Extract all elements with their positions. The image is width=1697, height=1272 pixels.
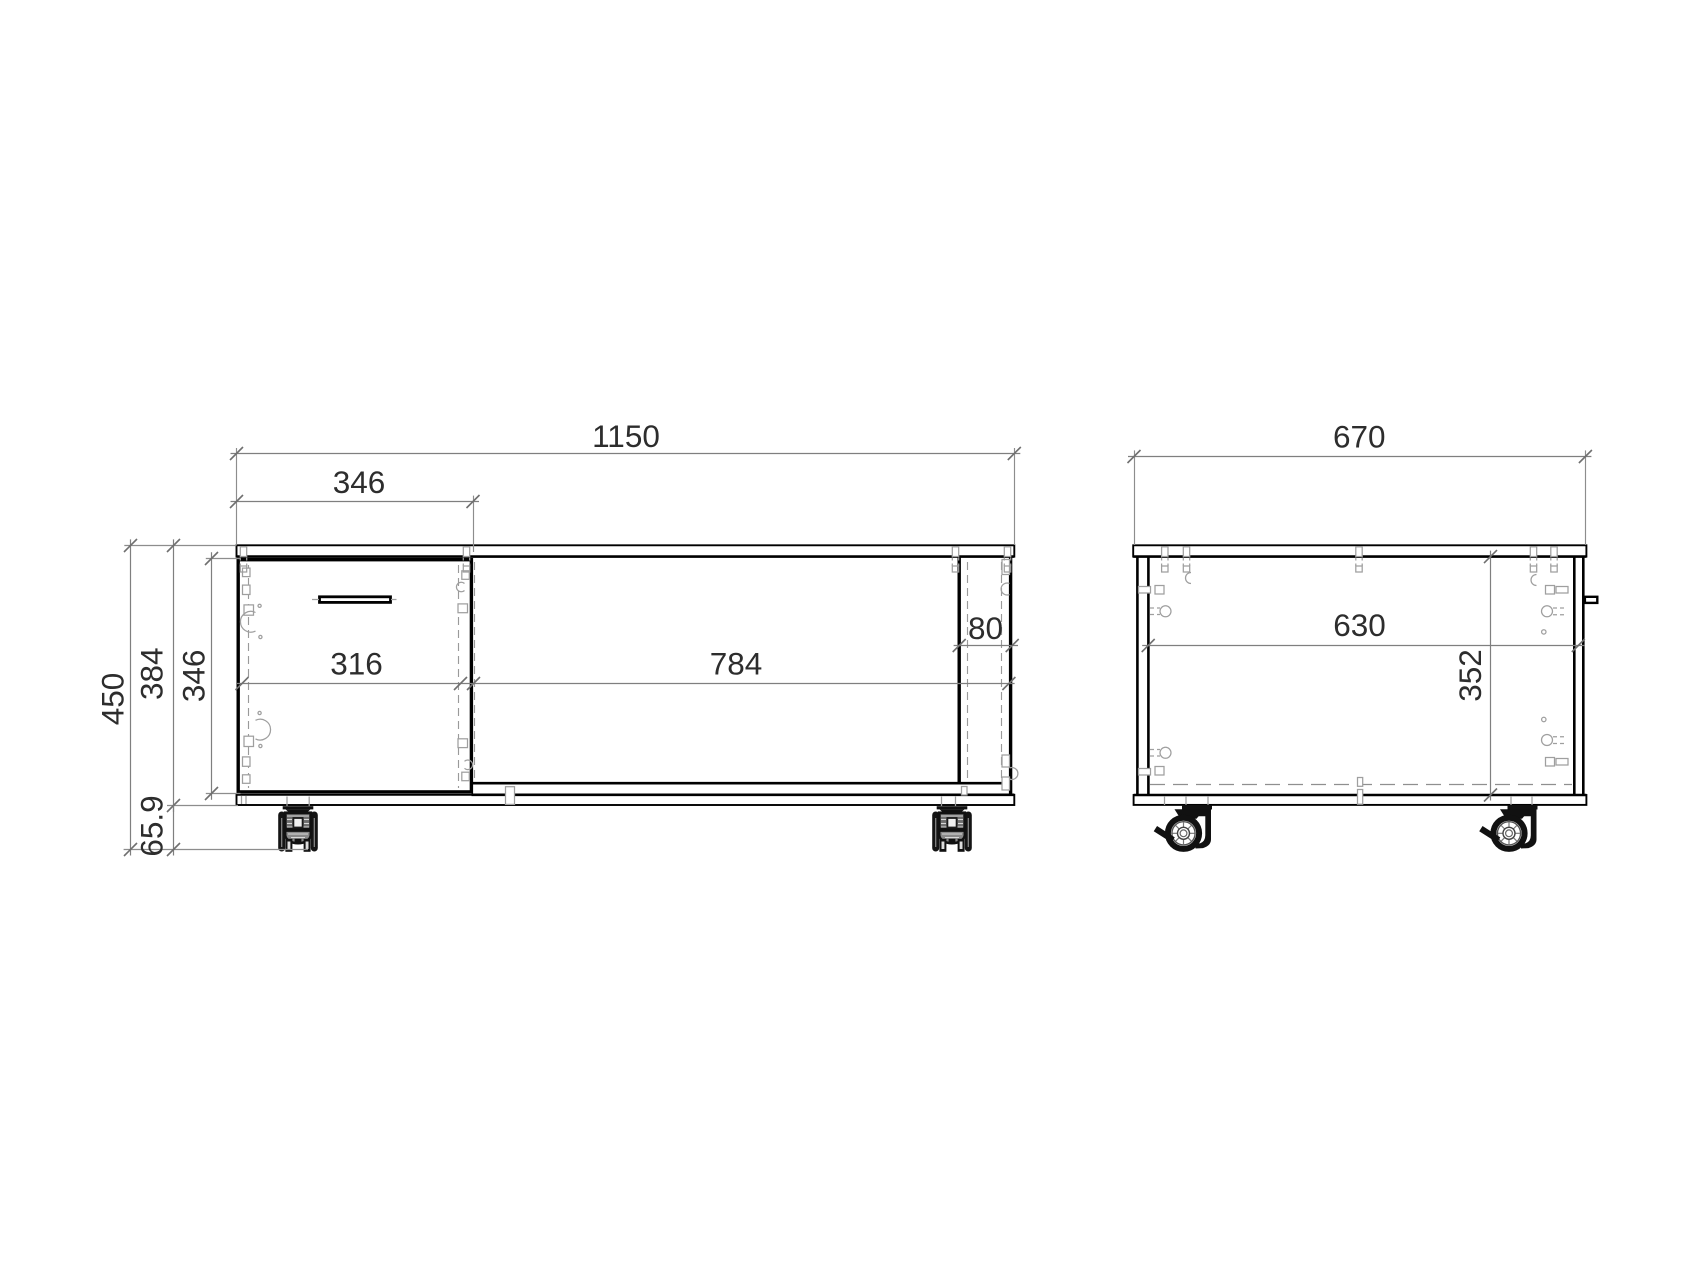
svg-text:630: 630 (1333, 607, 1386, 643)
svg-text:346: 346 (333, 464, 386, 500)
svg-text:352: 352 (1452, 649, 1488, 702)
svg-text:1150: 1150 (592, 418, 660, 454)
svg-text:384: 384 (133, 647, 169, 700)
svg-text:65.9: 65.9 (133, 795, 169, 856)
svg-text:670: 670 (1333, 418, 1386, 454)
svg-text:80: 80 (968, 610, 1003, 646)
svg-text:450: 450 (95, 673, 131, 726)
svg-text:346: 346 (175, 650, 211, 703)
svg-text:316: 316 (330, 646, 383, 682)
svg-text:784: 784 (710, 646, 763, 682)
